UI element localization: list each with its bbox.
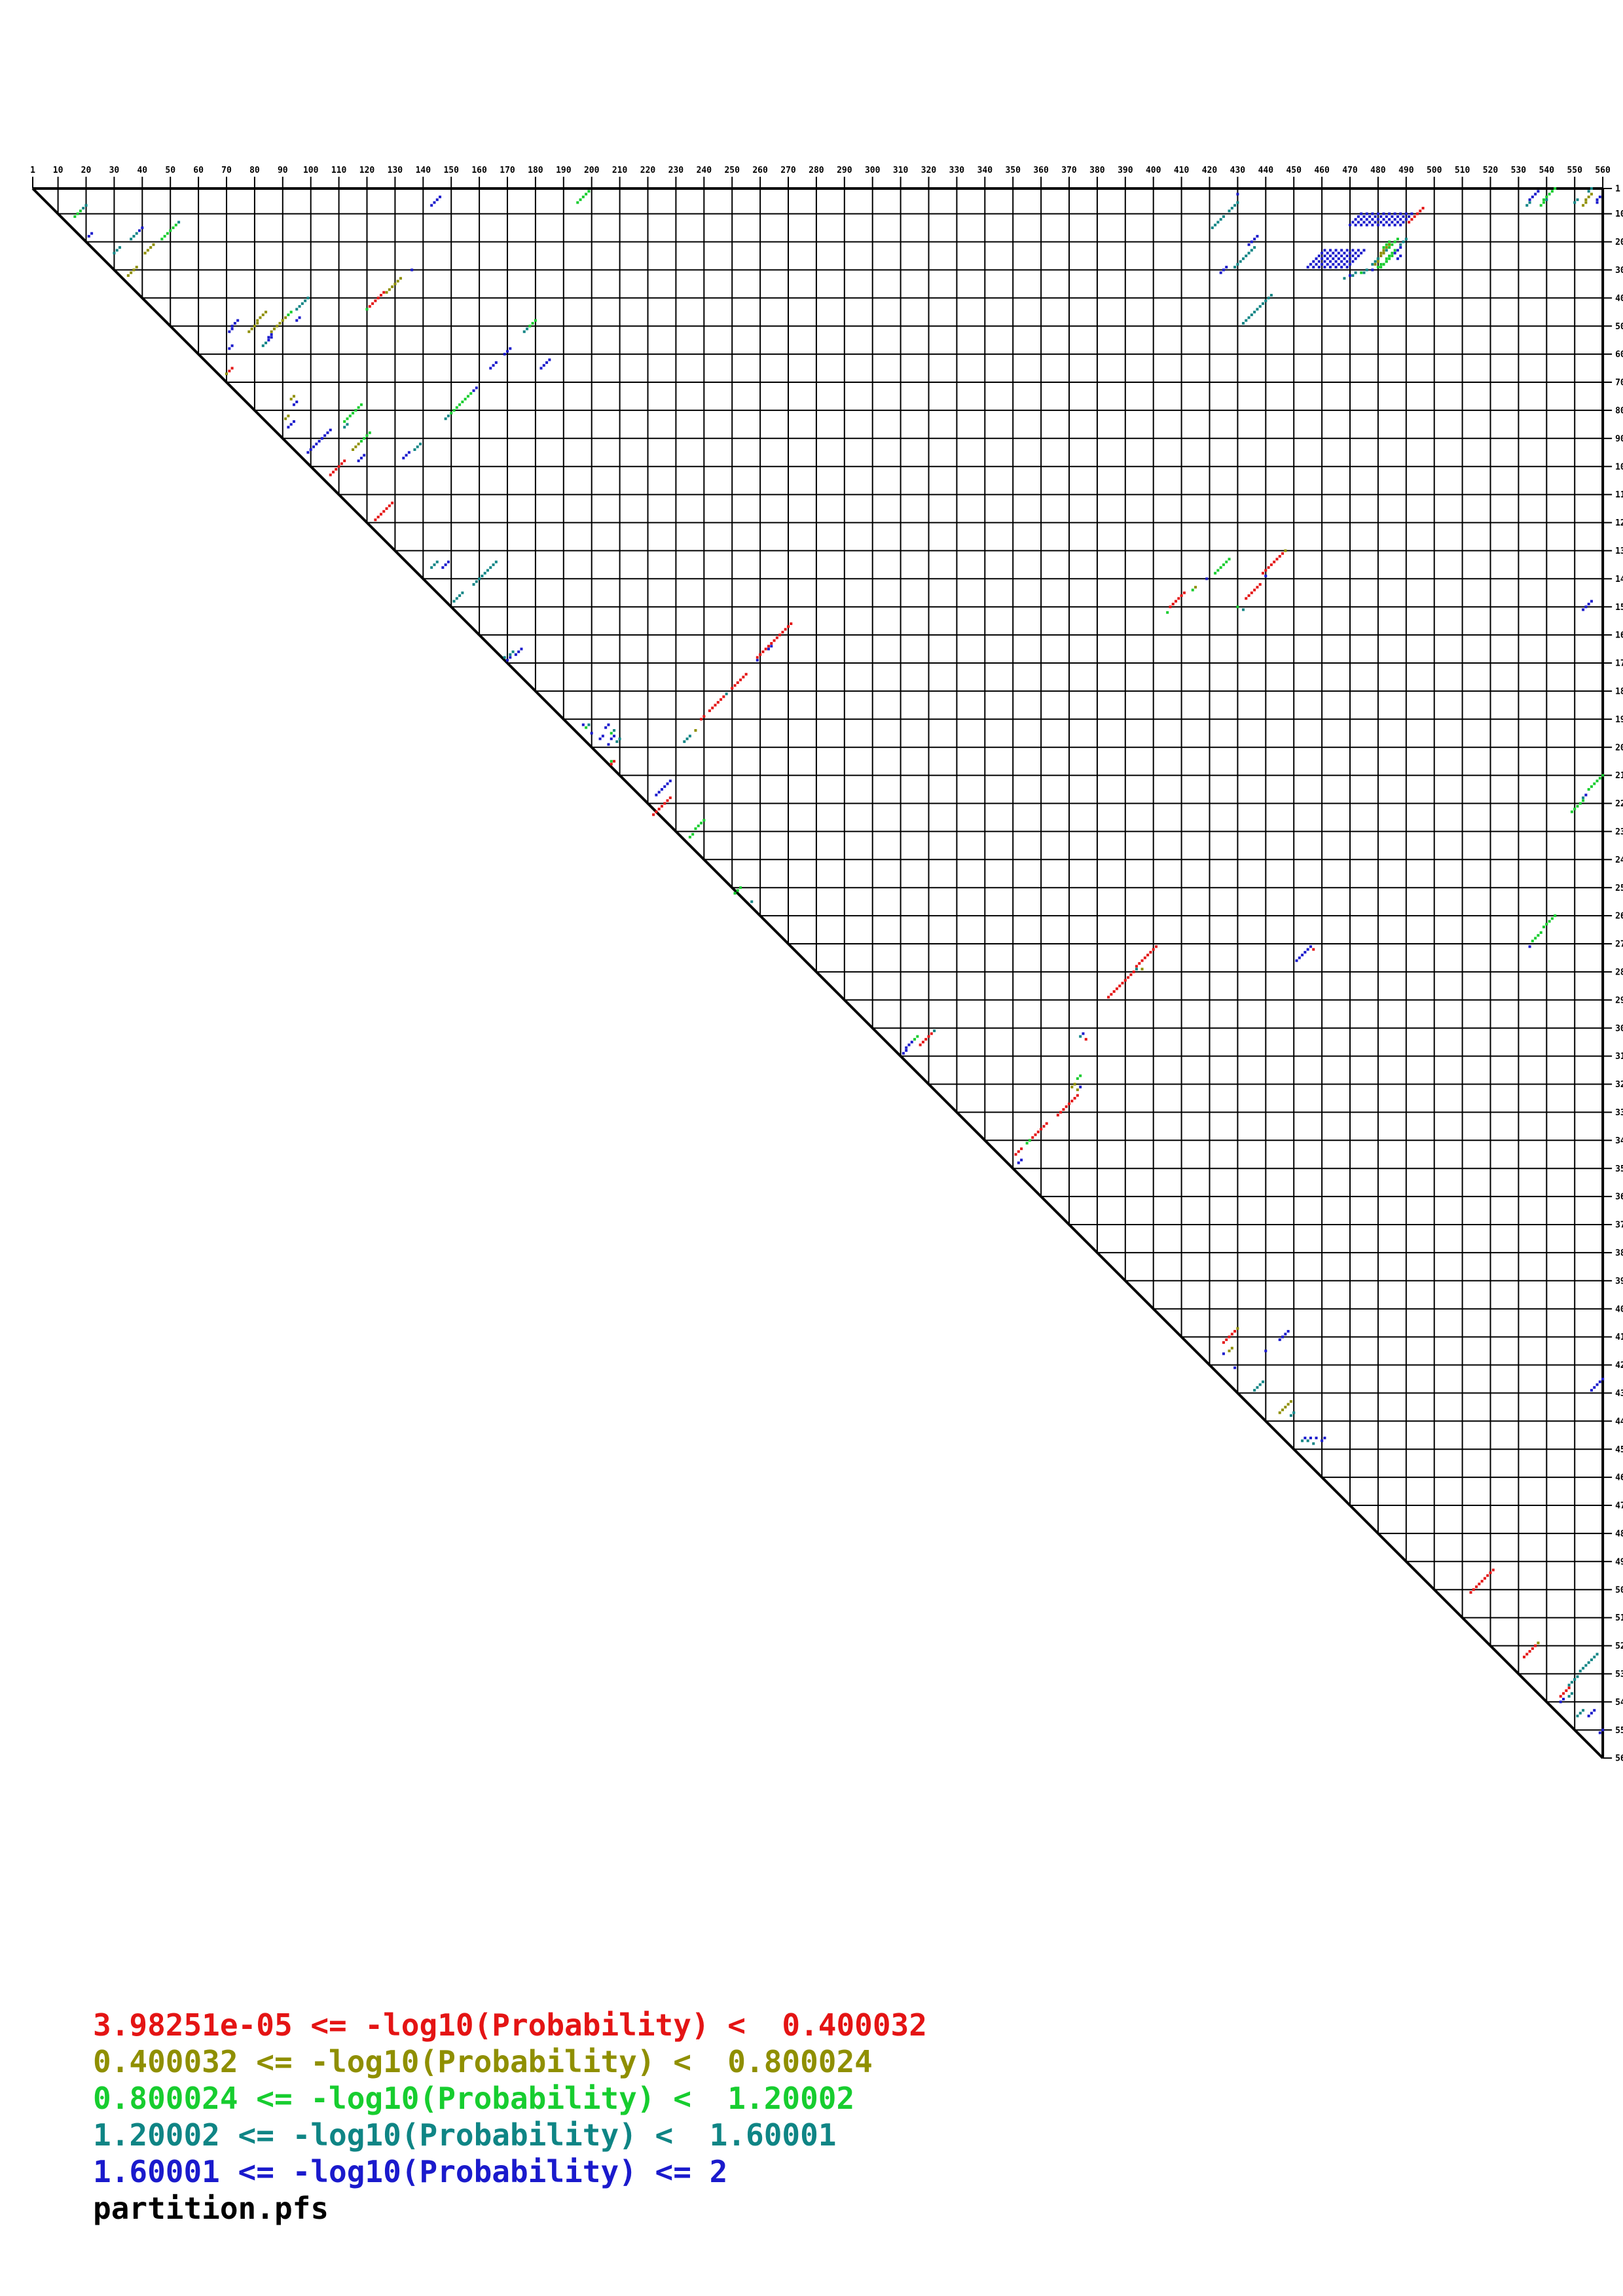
svg-text:30: 30: [1615, 266, 1623, 276]
svg-text:160: 160: [1615, 631, 1623, 641]
svg-text:180: 180: [1615, 687, 1623, 696]
svg-text:530: 530: [1511, 166, 1527, 175]
svg-text:20: 20: [81, 166, 92, 175]
svg-text:120: 120: [1615, 518, 1623, 528]
svg-text:550: 550: [1615, 1726, 1623, 1736]
svg-text:510: 510: [1615, 1613, 1623, 1623]
svg-text:440: 440: [1258, 166, 1274, 175]
svg-text:200: 200: [1615, 743, 1623, 753]
svg-text:210: 210: [1615, 771, 1623, 781]
svg-text:340: 340: [977, 166, 993, 175]
svg-text:70: 70: [221, 166, 232, 175]
svg-text:430: 430: [1230, 166, 1246, 175]
svg-text:30: 30: [109, 166, 120, 175]
svg-text:460: 460: [1615, 1473, 1623, 1483]
svg-text:510: 510: [1455, 166, 1470, 175]
svg-text:240: 240: [697, 166, 712, 175]
svg-text:40: 40: [137, 166, 147, 175]
legend-line-bin1: 3.98251e-05 <= -log10(Probability) < 0.4…: [93, 2007, 927, 2043]
svg-text:540: 540: [1615, 1698, 1623, 1708]
svg-text:260: 260: [752, 166, 768, 175]
svg-text:480: 480: [1615, 1529, 1623, 1539]
svg-text:260: 260: [1615, 912, 1623, 922]
svg-text:390: 390: [1118, 166, 1133, 175]
svg-text:100: 100: [303, 166, 319, 175]
svg-text:200: 200: [584, 166, 600, 175]
svg-text:220: 220: [1615, 799, 1623, 809]
svg-text:450: 450: [1615, 1445, 1623, 1455]
svg-text:80: 80: [1615, 406, 1623, 416]
svg-text:410: 410: [1615, 1333, 1623, 1342]
svg-text:150: 150: [443, 166, 459, 175]
filename-label: partition.pfs: [93, 2190, 927, 2227]
svg-text:80: 80: [249, 166, 260, 175]
svg-text:90: 90: [278, 166, 288, 175]
svg-text:350: 350: [1615, 1164, 1623, 1174]
svg-text:150: 150: [1615, 603, 1623, 613]
svg-text:270: 270: [780, 166, 796, 175]
svg-text:60: 60: [193, 166, 204, 175]
legend-line-bin4: 1.20002 <= -log10(Probability) < 1.60001: [93, 2117, 927, 2153]
svg-text:140: 140: [1615, 575, 1623, 584]
svg-text:560: 560: [1615, 1754, 1623, 1764]
svg-text:470: 470: [1342, 166, 1358, 175]
svg-text:380: 380: [1615, 1248, 1623, 1258]
svg-text:170: 170: [1615, 659, 1623, 669]
legend: 3.98251e-05 <= -log10(Probability) < 0.4…: [93, 2007, 927, 2227]
svg-text:300: 300: [865, 166, 881, 175]
svg-text:550: 550: [1567, 166, 1582, 175]
svg-text:280: 280: [1615, 967, 1623, 977]
svg-text:370: 370: [1061, 166, 1077, 175]
svg-text:340: 340: [1615, 1136, 1623, 1146]
svg-text:400: 400: [1615, 1304, 1623, 1314]
svg-text:110: 110: [1615, 490, 1623, 500]
svg-text:10: 10: [1615, 209, 1623, 219]
svg-text:520: 520: [1615, 1641, 1623, 1651]
svg-text:440: 440: [1615, 1417, 1623, 1427]
svg-text:490: 490: [1615, 1557, 1623, 1567]
svg-text:130: 130: [1615, 547, 1623, 556]
svg-text:400: 400: [1146, 166, 1161, 175]
svg-text:470: 470: [1615, 1501, 1623, 1511]
svg-text:270: 270: [1615, 940, 1623, 950]
svg-text:530: 530: [1615, 1670, 1623, 1679]
legend-line-bin3: 0.800024 <= -log10(Probability) < 1.2000…: [93, 2080, 927, 2117]
svg-text:460: 460: [1314, 166, 1330, 175]
svg-text:10: 10: [53, 166, 64, 175]
svg-text:50: 50: [165, 166, 175, 175]
svg-text:230: 230: [668, 166, 684, 175]
svg-text:60: 60: [1615, 350, 1623, 360]
svg-text:310: 310: [1615, 1052, 1623, 1062]
svg-text:70: 70: [1615, 378, 1623, 388]
legend-line-bin2: 0.400032 <= -log10(Probability) < 0.8000…: [93, 2043, 927, 2080]
svg-text:160: 160: [471, 166, 487, 175]
svg-text:300: 300: [1615, 1024, 1623, 1033]
svg-text:90: 90: [1615, 434, 1623, 444]
svg-text:380: 380: [1089, 166, 1105, 175]
svg-text:50: 50: [1615, 322, 1623, 332]
svg-text:430: 430: [1615, 1389, 1623, 1399]
svg-text:20: 20: [1615, 238, 1623, 247]
svg-text:500: 500: [1427, 166, 1442, 175]
svg-text:330: 330: [949, 166, 965, 175]
svg-text:290: 290: [837, 166, 852, 175]
svg-text:360: 360: [1615, 1193, 1623, 1202]
probability-dot-plot: 1102030405060708090100110120130140150160…: [0, 0, 1623, 2296]
svg-text:180: 180: [528, 166, 543, 175]
svg-text:230: 230: [1615, 827, 1623, 837]
legend-line-bin5: 1.60001 <= -log10(Probability) <= 2: [93, 2153, 927, 2190]
svg-text:290: 290: [1615, 996, 1623, 1005]
svg-text:120: 120: [359, 166, 375, 175]
svg-text:170: 170: [500, 166, 515, 175]
svg-text:450: 450: [1286, 166, 1302, 175]
svg-text:360: 360: [1033, 166, 1049, 175]
svg-text:540: 540: [1539, 166, 1555, 175]
svg-text:240: 240: [1615, 855, 1623, 865]
svg-text:140: 140: [416, 166, 431, 175]
svg-text:410: 410: [1174, 166, 1190, 175]
svg-text:490: 490: [1398, 166, 1414, 175]
svg-text:100: 100: [1615, 462, 1623, 472]
svg-text:250: 250: [724, 166, 740, 175]
svg-text:390: 390: [1615, 1276, 1623, 1286]
svg-text:480: 480: [1370, 166, 1386, 175]
svg-text:40: 40: [1615, 294, 1623, 304]
svg-text:110: 110: [331, 166, 347, 175]
svg-text:220: 220: [640, 166, 656, 175]
svg-text:520: 520: [1483, 166, 1499, 175]
svg-text:190: 190: [556, 166, 572, 175]
svg-text:250: 250: [1615, 884, 1623, 893]
svg-text:1: 1: [1615, 185, 1620, 194]
svg-text:210: 210: [612, 166, 628, 175]
svg-text:320: 320: [921, 166, 937, 175]
svg-text:310: 310: [893, 166, 909, 175]
svg-text:420: 420: [1615, 1361, 1623, 1371]
svg-text:320: 320: [1615, 1080, 1623, 1090]
svg-text:420: 420: [1202, 166, 1218, 175]
dot-plot-canvas: 1102030405060708090100110120130140150160…: [0, 0, 1623, 2296]
svg-text:370: 370: [1615, 1221, 1623, 1230]
svg-text:500: 500: [1615, 1585, 1623, 1595]
svg-text:350: 350: [1005, 166, 1021, 175]
svg-text:130: 130: [388, 166, 403, 175]
svg-text:1: 1: [30, 166, 35, 175]
svg-text:330: 330: [1615, 1108, 1623, 1118]
svg-text:560: 560: [1595, 166, 1611, 175]
svg-text:280: 280: [809, 166, 824, 175]
svg-text:190: 190: [1615, 715, 1623, 725]
